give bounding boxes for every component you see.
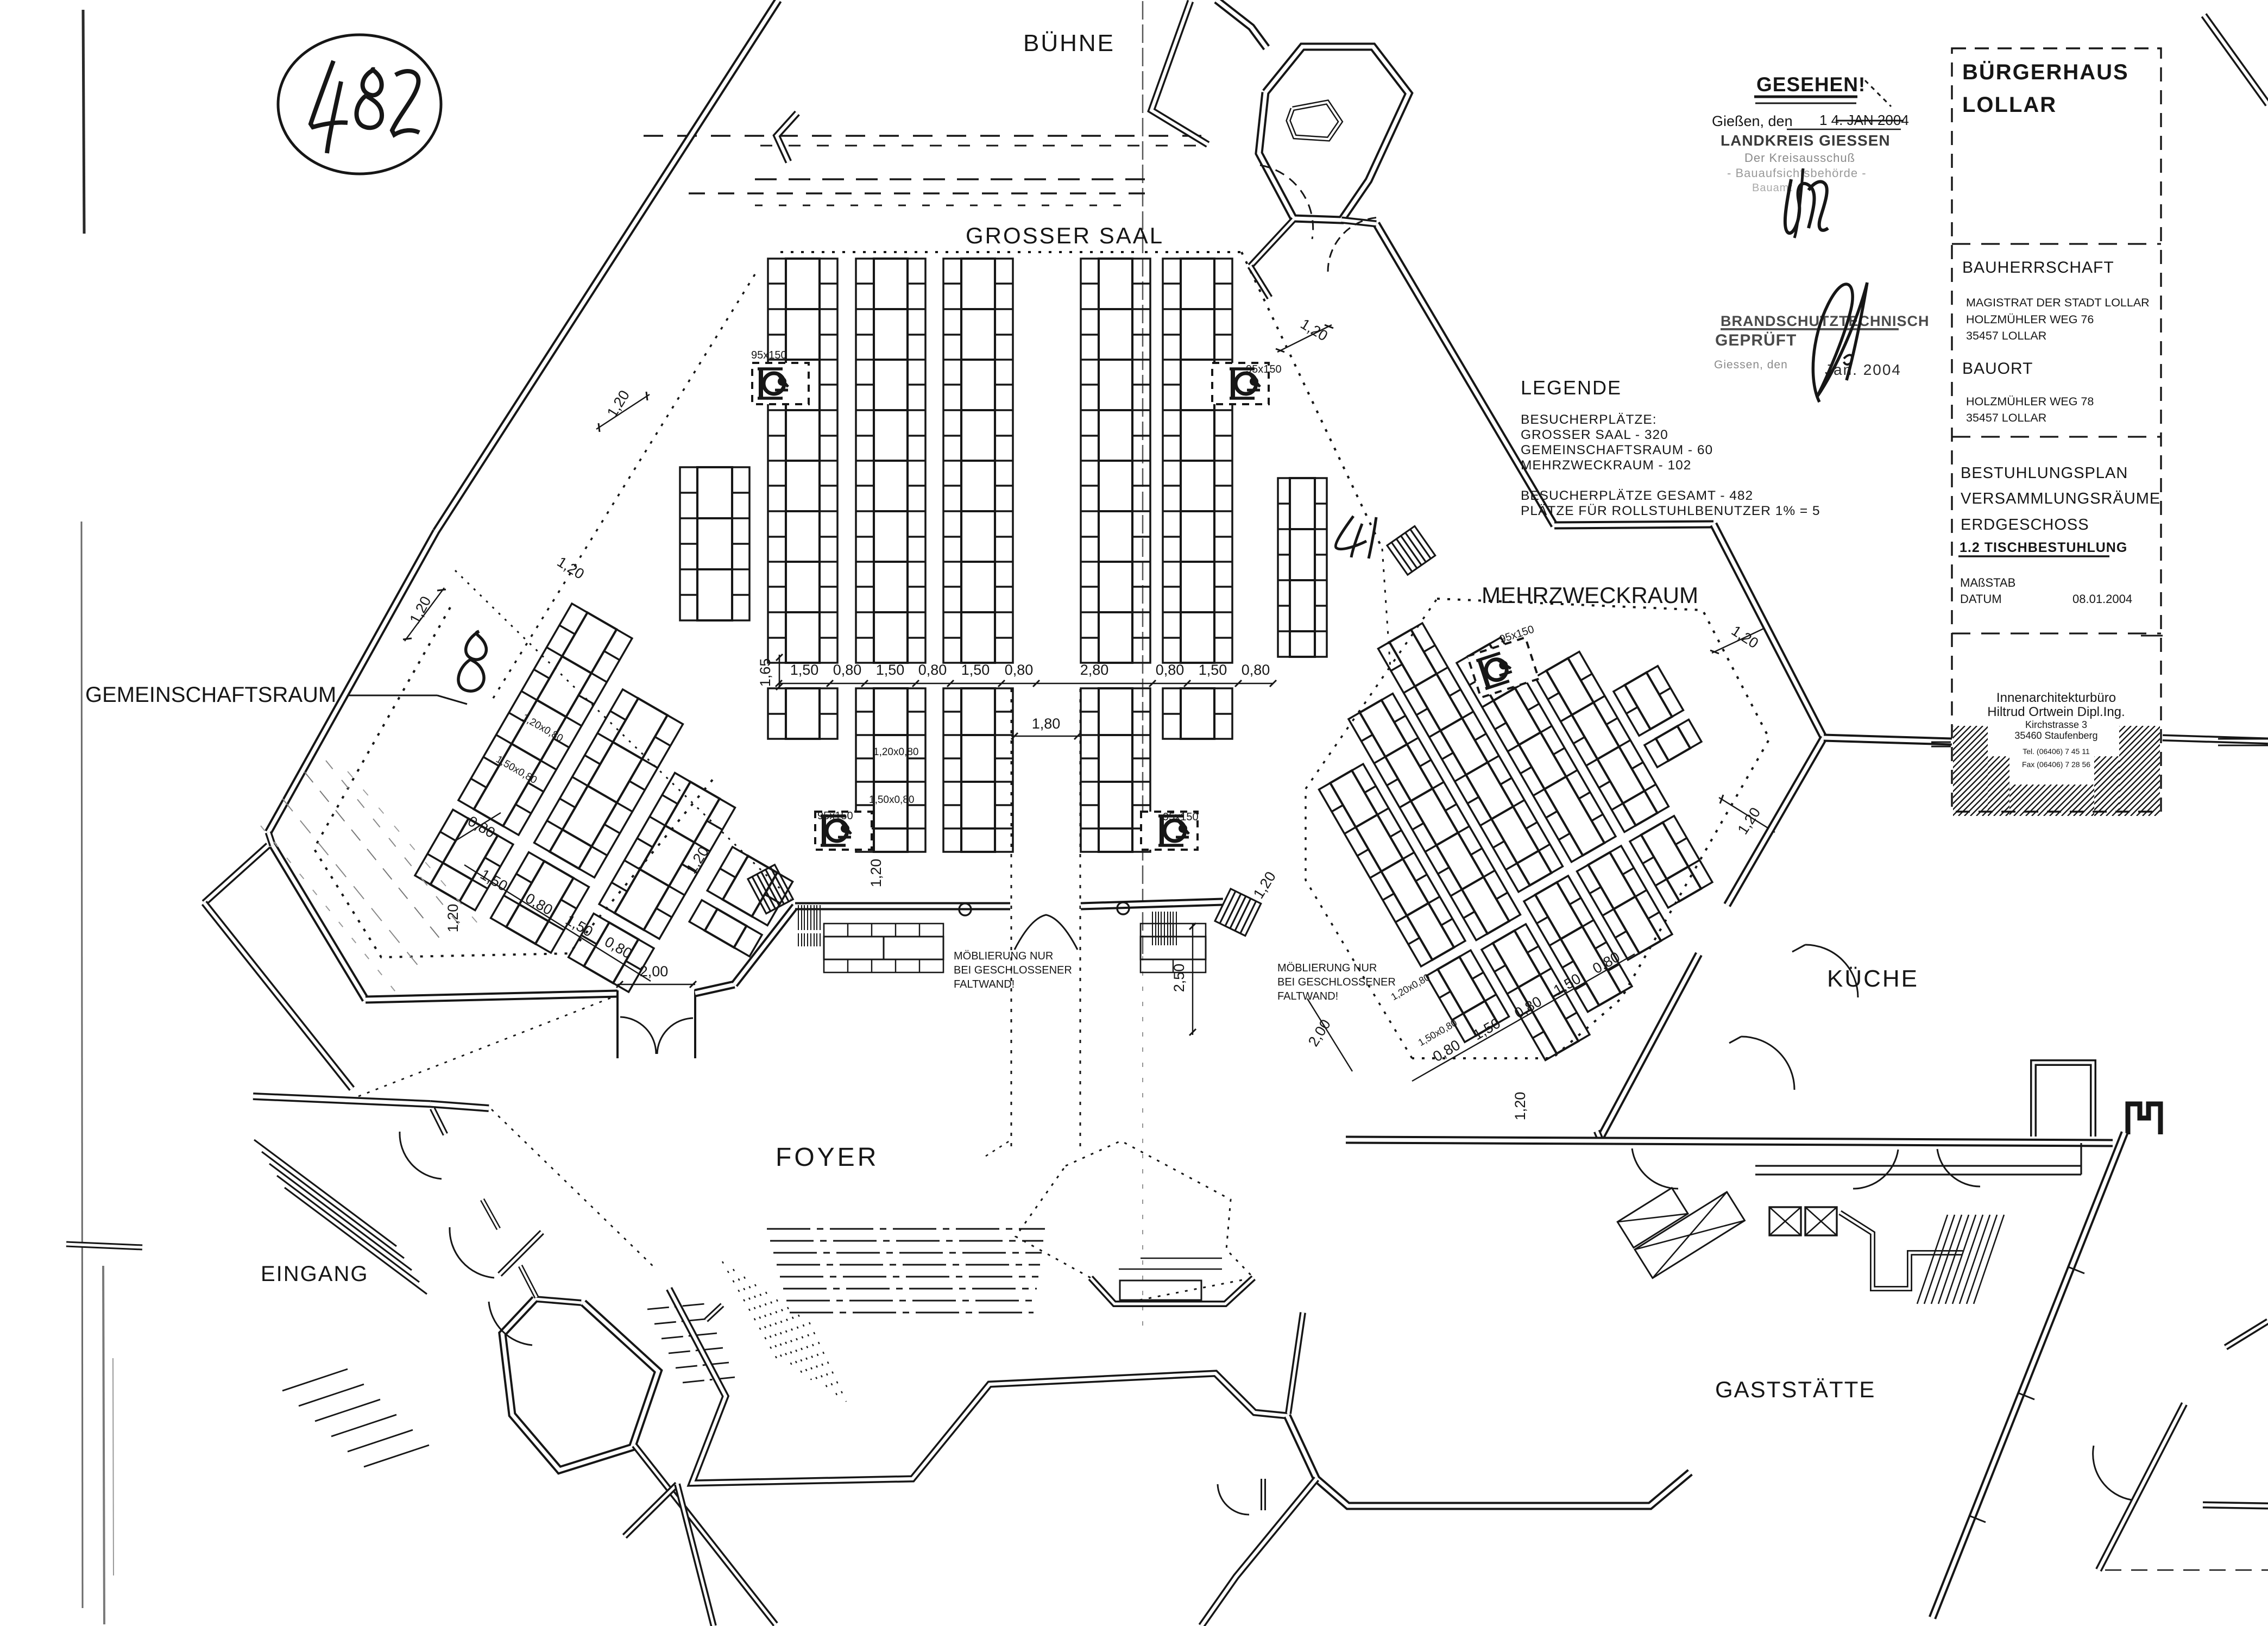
svg-text:MAßSTAB: MAßSTAB [1960,576,2015,589]
svg-text:GASTSTÄTTE: GASTSTÄTTE [1715,1377,1875,1402]
svg-text:MÖBLIERUNG NUR: MÖBLIERUNG NUR [954,950,1053,962]
svg-text:FALTWAND!: FALTWAND! [1277,990,1338,1002]
svg-text:BEI GESCHLOSSENER: BEI GESCHLOSSENER [954,964,1072,976]
svg-text:Fax (06406) 7 28 56: Fax (06406) 7 28 56 [2022,760,2090,769]
svg-text:GROSSER SAAL: GROSSER SAAL [966,223,1164,248]
svg-text:BRANDSCHUTZTECHNISCH: BRANDSCHUTZTECHNISCH [1721,313,1930,329]
svg-text:FOYER: FOYER [776,1143,879,1172]
svg-text:1,20: 1,20 [445,904,461,933]
svg-text:BEI GESCHLOSSENER: BEI GESCHLOSSENER [1277,976,1396,988]
svg-text:BAUORT: BAUORT [1962,360,2033,378]
svg-text:LOLLAR: LOLLAR [1962,93,2057,117]
svg-text:MEHRZWECKRAUM - 102: MEHRZWECKRAUM - 102 [1521,458,1691,473]
svg-text:1,20: 1,20 [1512,1092,1528,1121]
svg-text:Kirchstrasse 3: Kirchstrasse 3 [2025,719,2087,730]
svg-text:1,65: 1,65 [757,658,773,687]
svg-text:LANDKREIS GIESSEN: LANDKREIS GIESSEN [1721,132,1891,149]
svg-text:95x150: 95x150 [1246,363,1282,375]
svg-text:35457 LOLLAR: 35457 LOLLAR [1966,411,2046,424]
svg-text:KÜCHE: KÜCHE [1827,965,1919,992]
svg-text:EINGANG: EINGANG [261,1262,368,1286]
svg-text:MAGISTRAT DER STADT LOLLAR: MAGISTRAT DER STADT LOLLAR [1966,296,2150,309]
svg-text:BÜHNE: BÜHNE [1023,30,1115,56]
svg-text:GESEHEN!: GESEHEN! [1756,73,1866,96]
svg-text:0,80: 0,80 [918,662,947,678]
svg-text:95x150: 95x150 [751,349,787,361]
svg-text:DATUM: DATUM [1960,592,2002,606]
svg-text:Bauamt: Bauamt [1752,182,1793,194]
svg-text:1,20: 1,20 [868,859,884,888]
svg-text:- Bauaufsichtsbehörde -: - Bauaufsichtsbehörde - [1727,166,1867,180]
svg-text:Gießen, den: Gießen, den [1712,113,1793,129]
svg-text:BAUHERRSCHAFT: BAUHERRSCHAFT [1962,259,2114,277]
svg-text:1,50: 1,50 [790,662,819,678]
svg-text:ERDGESCHOSS: ERDGESCHOSS [1961,516,2089,533]
svg-text:LEGENDE: LEGENDE [1521,376,1622,399]
svg-text:Hiltrud Ortwein Dipl.Ing.: Hiltrud Ortwein Dipl.Ing. [1987,705,2125,719]
svg-text:BESUCHERPLÄTZE:: BESUCHERPLÄTZE: [1521,412,1657,427]
svg-text:MEHRZWECKRAUM: MEHRZWECKRAUM [1482,582,1698,608]
svg-text:BESTUHLUNGSPLAN: BESTUHLUNGSPLAN [1961,464,2128,482]
svg-text:95x150: 95x150 [817,810,853,822]
svg-text:35460 Staufenberg: 35460 Staufenberg [2014,730,2097,741]
svg-text:1,50: 1,50 [876,662,905,678]
svg-text:MÖBLIERUNG NUR: MÖBLIERUNG NUR [1277,962,1377,974]
svg-text:1,50x0,80: 1,50x0,80 [869,794,914,806]
svg-text:FALTWAND!: FALTWAND! [954,978,1015,990]
svg-text:1,50: 1,50 [961,662,990,678]
svg-text:PLÄTZE FÜR ROLLSTUHLBENUTZER: PLÄTZE FÜR ROLLSTUHLBENUTZER 1% = 5 [1521,504,1820,518]
svg-text:GEMEINSCHAFTSRAUM - 60: GEMEINSCHAFTSRAUM - 60 [1521,443,1713,457]
svg-text:2,80: 2,80 [1080,662,1109,678]
svg-text:VERSAMMLUNGSRÄUME: VERSAMMLUNGSRÄUME [1961,490,2160,507]
svg-text:1,80: 1,80 [1032,715,1061,732]
svg-text:GEPRÜFT: GEPRÜFT [1715,331,1797,349]
svg-text:1,20x0,80: 1,20x0,80 [873,746,918,758]
svg-text:0,80: 0,80 [1242,662,1270,678]
svg-text:95x150: 95x150 [1163,811,1199,823]
svg-text:Innenarchitekturbüro: Innenarchitekturbüro [1996,690,2116,705]
svg-text:35457 LOLLAR: 35457 LOLLAR [1966,329,2046,342]
svg-text:Tel. (06406) 7 45 11: Tel. (06406) 7 45 11 [2023,747,2090,756]
svg-text:Der Kreisausschuß: Der Kreisausschuß [1744,151,1855,165]
svg-text:HOLZMÜHLER WEG 78: HOLZMÜHLER WEG 78 [1966,395,2094,408]
svg-text:GROSSER SAAL - 320: GROSSER SAAL - 320 [1521,428,1668,442]
svg-text:Giessen, den: Giessen, den [1714,359,1788,371]
svg-text:1.2 TISCHBESTUHLUNG: 1.2 TISCHBESTUHLUNG [1960,540,2127,555]
svg-text:HOLZMÜHLER WEG 76: HOLZMÜHLER WEG 76 [1966,313,2094,326]
svg-text:0,80: 0,80 [1156,662,1185,678]
svg-text:BESUCHERPLÄTZE GESAMT - 482: BESUCHERPLÄTZE GESAMT - 482 [1521,488,1753,503]
svg-text:1,50: 1,50 [1199,662,1227,678]
svg-text:08.01.2004: 08.01.2004 [2072,592,2132,606]
svg-text:GEMEINSCHAFTSRAUM: GEMEINSCHAFTSRAUM [85,683,336,707]
svg-text:0,80: 0,80 [1005,662,1034,678]
svg-text:BÜRGERHAUS: BÜRGERHAUS [1962,60,2129,84]
svg-text:2,00: 2,00 [640,963,669,980]
svg-text:0,80: 0,80 [833,662,862,678]
